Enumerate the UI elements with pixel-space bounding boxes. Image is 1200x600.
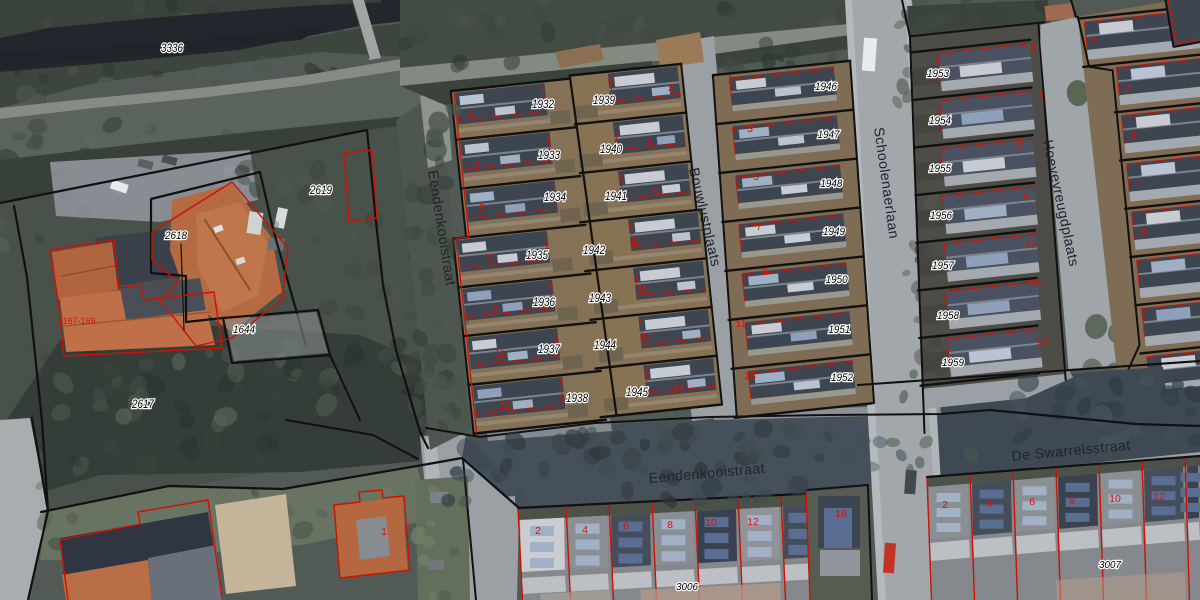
svg-text:3006: 3006 (676, 581, 698, 593)
svg-text:16: 16 (835, 508, 847, 520)
svg-text:6: 6 (1029, 496, 1035, 508)
svg-text:1946: 1946 (815, 81, 838, 93)
svg-text:2: 2 (942, 499, 948, 511)
svg-text:1: 1 (1091, 35, 1097, 47)
svg-text:1948: 1948 (820, 178, 843, 190)
svg-text:4: 4 (582, 524, 588, 536)
svg-text:167-169: 167-169 (62, 316, 95, 326)
svg-text:10: 10 (637, 284, 649, 296)
svg-text:1933: 1933 (538, 148, 560, 162)
svg-text:1644: 1644 (233, 324, 255, 336)
svg-text:12: 12 (641, 331, 653, 343)
svg-text:1950: 1950 (826, 274, 849, 286)
svg-text:8: 8 (633, 236, 639, 248)
svg-text:12: 12 (1031, 277, 1043, 289)
svg-text:4: 4 (1038, 90, 1044, 102)
svg-text:3: 3 (474, 160, 480, 172)
svg-text:1939: 1939 (593, 93, 615, 107)
svg-text:1953: 1953 (927, 68, 950, 80)
svg-text:1944: 1944 (594, 338, 616, 352)
svg-text:12: 12 (747, 516, 759, 528)
svg-text:8: 8 (667, 519, 673, 531)
svg-text:4: 4 (986, 498, 992, 510)
svg-text:1: 1 (727, 73, 733, 85)
svg-text:1942: 1942 (583, 243, 605, 257)
svg-text:7: 7 (756, 221, 762, 233)
svg-text:11: 11 (495, 348, 506, 360)
svg-text:1: 1 (381, 526, 387, 538)
svg-text:1952: 1952 (831, 372, 853, 384)
svg-text:2617: 2617 (131, 397, 155, 411)
svg-text:2: 2 (668, 82, 674, 94)
svg-text:1955: 1955 (929, 163, 952, 175)
svg-text:1943: 1943 (589, 291, 611, 305)
svg-text:13: 13 (499, 400, 511, 412)
svg-text:1934: 1934 (544, 190, 566, 204)
svg-text:1940: 1940 (600, 142, 622, 156)
svg-text:3336: 3336 (161, 41, 183, 55)
svg-text:3: 3 (747, 123, 753, 135)
svg-text:1958: 1958 (937, 310, 960, 322)
svg-text:9: 9 (492, 304, 498, 316)
svg-text:6: 6 (623, 520, 629, 532)
svg-text:4: 4 (646, 136, 652, 148)
svg-text:10: 10 (705, 517, 717, 529)
svg-text:1949: 1949 (823, 226, 845, 238)
svg-text:10: 10 (1109, 493, 1121, 505)
svg-text:7: 7 (486, 252, 492, 264)
svg-text:3007: 3007 (1099, 559, 1122, 571)
svg-text:9: 9 (1141, 226, 1147, 238)
svg-text:1945: 1945 (626, 385, 648, 399)
svg-text:8: 8 (1069, 495, 1075, 507)
svg-text:9: 9 (762, 266, 768, 278)
svg-text:3: 3 (1124, 83, 1130, 95)
svg-text:5: 5 (479, 202, 485, 214)
svg-text:11: 11 (736, 318, 747, 330)
svg-text:1947: 1947 (818, 129, 841, 141)
svg-text:8: 8 (1023, 191, 1029, 203)
svg-text:14: 14 (1036, 336, 1048, 348)
svg-text:1: 1 (467, 108, 473, 120)
svg-text:5: 5 (753, 171, 759, 183)
svg-text:13: 13 (744, 370, 756, 382)
svg-text:1951: 1951 (828, 324, 850, 336)
svg-text:10: 10 (1025, 239, 1037, 251)
svg-text:1957: 1957 (932, 260, 955, 272)
svg-text:6: 6 (652, 186, 658, 198)
svg-text:1936: 1936 (533, 295, 555, 309)
svg-text:2: 2 (1030, 42, 1036, 54)
svg-text:14: 14 (673, 382, 685, 394)
svg-text:1937: 1937 (538, 342, 561, 356)
svg-text:1938: 1938 (566, 391, 588, 405)
svg-text:1935: 1935 (526, 248, 548, 262)
svg-text:1959: 1959 (942, 357, 964, 369)
svg-text:1954: 1954 (929, 115, 951, 127)
svg-text:2: 2 (535, 525, 541, 537)
svg-text:2618: 2618 (164, 230, 188, 242)
svg-text:7: 7 (1135, 177, 1141, 189)
svg-text:2619: 2619 (309, 183, 332, 197)
svg-text:1932: 1932 (532, 97, 554, 111)
svg-text:5: 5 (1131, 130, 1137, 142)
svg-text:1956: 1956 (930, 210, 953, 222)
svg-text:1941: 1941 (605, 189, 627, 203)
svg-text:12: 12 (1153, 491, 1165, 503)
svg-text:6: 6 (1016, 140, 1022, 152)
